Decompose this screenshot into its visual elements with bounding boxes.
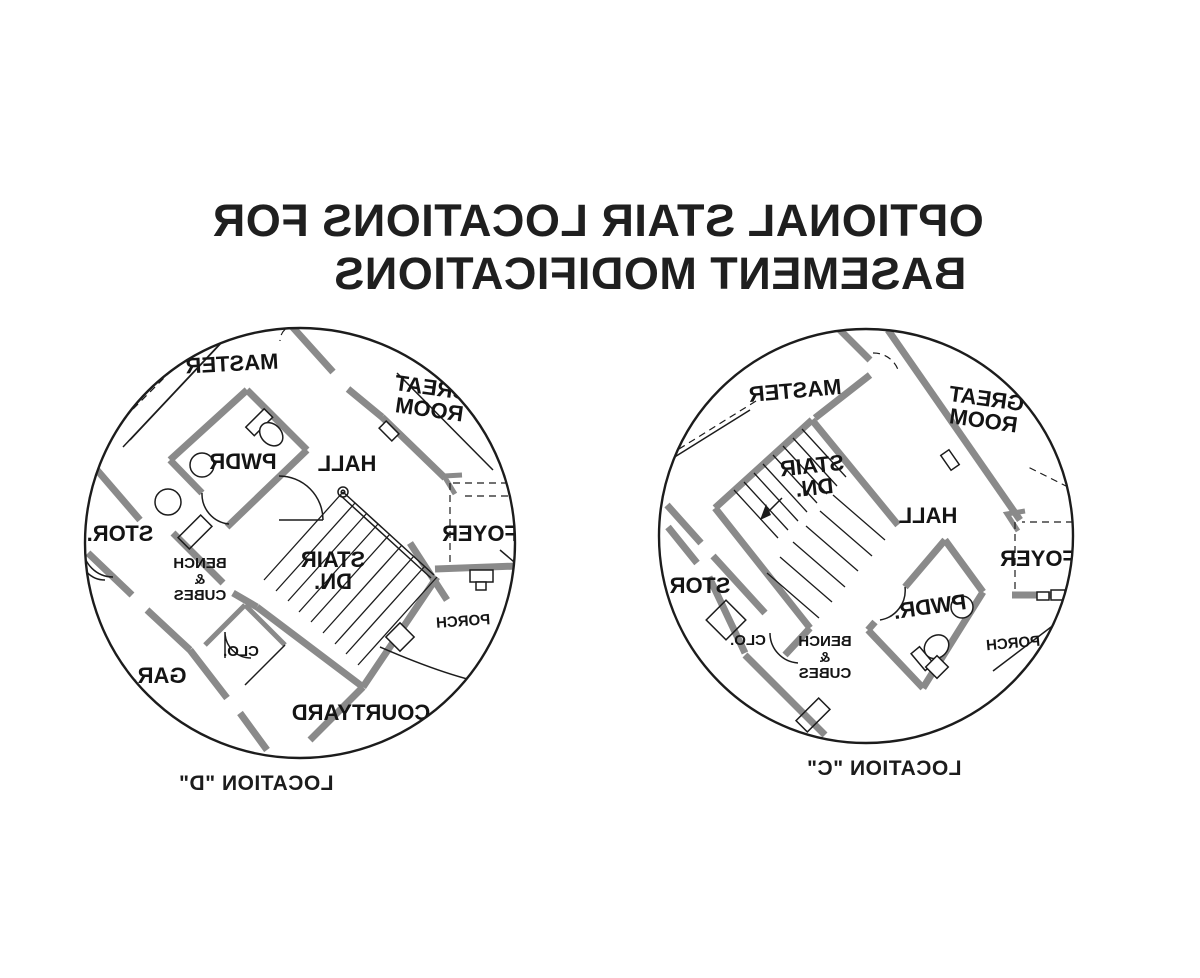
walls-c bbox=[667, 328, 1075, 735]
room-label-stair-2: DN. bbox=[314, 569, 352, 594]
room-label-porch: PORCH bbox=[985, 633, 1040, 655]
room-label-bench-1: BENCH bbox=[798, 633, 851, 650]
door-arcs-d bbox=[80, 476, 517, 687]
window-icon bbox=[941, 450, 960, 470]
room-label-pwdr: PWDR. bbox=[892, 589, 968, 624]
room-label-hall: HALL bbox=[899, 503, 958, 528]
room-label-bench-3: CUBES bbox=[799, 665, 852, 682]
room-label-foyer: FOYER bbox=[1000, 546, 1076, 571]
room-label-stor: STOR bbox=[670, 573, 731, 598]
plan-circle-c: MASTER GREAT ROOM STAIR DN. HALL FOYER S… bbox=[631, 315, 1101, 815]
entry-step-icon bbox=[476, 582, 486, 590]
room-label-courtyard: COURTYARD bbox=[292, 700, 431, 725]
sheet-title-line1: OPTIONAL STAIR LOCATIONS FOR bbox=[0, 194, 1198, 247]
room-label-bench-2: & bbox=[819, 649, 830, 666]
room-label-master: MASTER bbox=[748, 374, 843, 407]
plan-circle-d: MASTER GREAT ROOM HALL PWDR STOR. BENCH … bbox=[62, 315, 532, 815]
room-label-porch: PORCH bbox=[435, 611, 490, 632]
caption-location-d: LOCATION "D" bbox=[126, 772, 386, 796]
room-label-stair-2: DN. bbox=[794, 473, 834, 502]
room-label-bench-1: BENCH bbox=[173, 555, 226, 572]
plan-d-contents: MASTER GREAT ROOM HALL PWDR STOR. BENCH … bbox=[80, 322, 532, 750]
room-label-bench-3: CUBES bbox=[174, 587, 227, 604]
room-label-hall: HALL bbox=[318, 451, 377, 476]
entry-door-icon bbox=[470, 570, 493, 582]
plan-c-contents: MASTER GREAT ROOM STAIR DN. HALL FOYER S… bbox=[665, 328, 1076, 735]
room-label-clo: CLO. bbox=[730, 632, 766, 649]
entry-step-icon bbox=[1037, 592, 1049, 600]
thin-partitions-d bbox=[123, 323, 520, 685]
basin-icon bbox=[155, 489, 181, 515]
fixtures-c bbox=[706, 450, 1065, 732]
mirrored-plan-sheet: OPTIONAL STAIR LOCATIONS FOR BASEMENT MO… bbox=[0, 0, 1200, 978]
sheet-title: OPTIONAL STAIR LOCATIONS FOR BASEMENT MO… bbox=[0, 194, 1200, 300]
room-label-gar: GAR. bbox=[132, 663, 187, 688]
window-icon bbox=[379, 421, 399, 441]
room-label-bench-2: & bbox=[194, 571, 205, 588]
room-label-foyer: FOYER bbox=[442, 521, 518, 546]
room-label-pwdr: PWDR bbox=[209, 449, 276, 474]
room-label-clo: CLO. bbox=[223, 643, 259, 660]
stair-down-arrow bbox=[760, 498, 782, 520]
thin-partitions-c bbox=[665, 410, 1059, 671]
sheet-title-line2: BASEMENT MODIFICATIONS bbox=[50, 247, 1200, 300]
caption-location-c: LOCATION "C" bbox=[754, 757, 1014, 781]
bench-icon bbox=[796, 698, 830, 732]
room-label-stor: STOR. bbox=[87, 521, 154, 546]
